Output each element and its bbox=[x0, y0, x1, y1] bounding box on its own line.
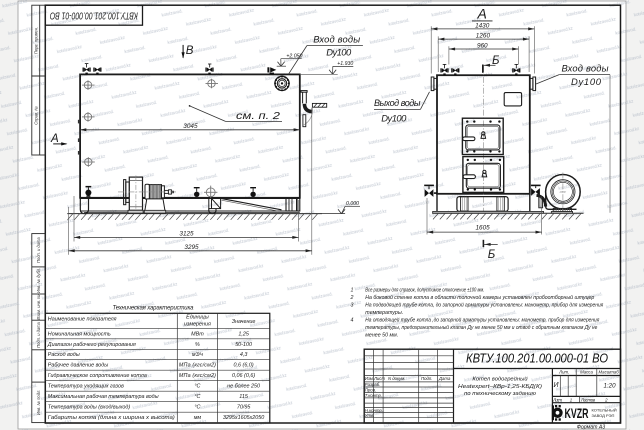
svg-text:МПа (кгс/см2): МПа (кгс/см2) bbox=[179, 363, 216, 369]
svg-text:ЗАВОД РЭП: ЗАВОД РЭП bbox=[592, 413, 615, 418]
svg-text:Котел водогрейный: Котел водогрейный bbox=[472, 376, 528, 383]
svg-text:70/95: 70/95 bbox=[237, 405, 251, 411]
svg-text:Вход воды: Вход воды bbox=[562, 62, 609, 73]
svg-text:Диапазон рабочего регулировани: Диапазон рабочего регулирования bbox=[47, 342, 136, 348]
svg-text:1,25: 1,25 bbox=[238, 331, 249, 337]
svg-text:°С: °С bbox=[194, 405, 200, 411]
svg-text:Взам. инв. №: Взам. инв. № bbox=[36, 294, 41, 320]
svg-text:Техническая характеристика: Техническая характеристика bbox=[113, 306, 195, 312]
svg-text:А: А bbox=[477, 6, 487, 22]
svg-text:КВТУ.100.201.00.000-01 ВО: КВТУ.100.201.00.000-01 ВО bbox=[466, 352, 608, 366]
svg-text:Справ. №: Справ. № bbox=[33, 106, 38, 125]
svg-text:3295: 3295 bbox=[184, 244, 199, 251]
svg-text:%: % bbox=[195, 342, 200, 348]
svg-text:Dy100: Dy100 bbox=[571, 76, 602, 87]
svg-text:Масса: Масса bbox=[580, 370, 593, 375]
svg-text:А: А bbox=[50, 133, 59, 145]
svg-text:Гидравлическое сопротивление к: Гидравлическое сопротивление котла bbox=[48, 373, 147, 379]
svg-text:Б: Б bbox=[492, 55, 500, 67]
svg-text:Листов: Листов bbox=[580, 398, 596, 403]
svg-text:1605: 1605 bbox=[475, 225, 490, 232]
svg-text:Номинальная мощность: Номинальная мощность bbox=[48, 331, 111, 337]
svg-text:0,6 (6,0): 0,6 (6,0) bbox=[234, 363, 254, 369]
svg-text:Пров.: Пров. bbox=[365, 388, 376, 393]
svg-text:+1.930: +1.930 bbox=[337, 61, 353, 67]
svg-text:КОТЕЛЬНЫЙ: КОТЕЛЬНЫЙ bbox=[592, 408, 617, 413]
svg-text:Лит.: Лит. bbox=[558, 370, 569, 375]
svg-text:Разраб.: Разраб. bbox=[365, 382, 381, 387]
svg-text:Габариты котла (длина х ширина: Габариты котла (длина х ширина х высота) bbox=[48, 415, 175, 421]
svg-text:0,06 (0,6): 0,06 (0,6) bbox=[232, 373, 255, 379]
svg-text:Значение: Значение bbox=[232, 319, 256, 325]
svg-text:по техническому заданию: по техническому заданию bbox=[464, 391, 536, 397]
svg-text:КВТУ.100.201.00.000-01 ВО: КВТУ.100.201.00.000-01 ВО bbox=[50, 10, 138, 22]
svg-text:температуры, предохранительный: температуры, предохранительный клапан Ду… bbox=[365, 324, 597, 331]
svg-text:Расход воды: Расход воды bbox=[48, 352, 80, 358]
svg-text:мм: мм bbox=[194, 415, 202, 421]
svg-text:Heatexpert–КВр-1,25-КБД(К): Heatexpert–КВр-1,25-КБД(К) bbox=[458, 384, 542, 390]
svg-text:50-100: 50-100 bbox=[235, 342, 252, 348]
svg-text:Температура воды (вход/выход): Температура воды (вход/выход) bbox=[48, 405, 131, 411]
svg-text:1: 1 bbox=[351, 288, 354, 294]
svg-text:115: 115 bbox=[239, 394, 249, 400]
svg-text:Инв. № дубл.: Инв. № дубл. bbox=[36, 268, 41, 293]
svg-text:Т.контр.: Т.контр. bbox=[365, 393, 382, 398]
svg-text:Dy100: Dy100 bbox=[381, 112, 407, 123]
svg-text:Dy100: Dy100 bbox=[326, 46, 352, 57]
svg-text:На подводящей трубе котла, до: На подводящей трубе котла, до запорной а… bbox=[365, 302, 603, 309]
svg-text:Дата: Дата bbox=[438, 376, 451, 381]
svg-text:N докум.: N докум. bbox=[388, 376, 405, 381]
svg-text:1260: 1260 bbox=[476, 33, 491, 40]
svg-text:3125: 3125 bbox=[179, 231, 194, 238]
svg-text:Изм.Лист: Изм.Лист bbox=[365, 376, 386, 381]
svg-text:4,3: 4,3 bbox=[240, 352, 248, 358]
svg-text:Инв. № подл.: Инв. № подл. bbox=[36, 390, 41, 415]
svg-text:Максимальная рабочая температу: Максимальная рабочая температура воды bbox=[48, 394, 159, 400]
svg-text:°С: °С bbox=[194, 394, 200, 400]
svg-text:Наименование показателя: Наименование показателя bbox=[48, 316, 117, 322]
svg-text:1:20: 1:20 bbox=[603, 383, 616, 390]
svg-text:Б: Б bbox=[488, 249, 496, 261]
svg-text:менее 50 мм.: менее 50 мм. bbox=[365, 332, 398, 338]
svg-text:960: 960 bbox=[477, 42, 488, 49]
svg-text:не более 250: не более 250 bbox=[227, 384, 260, 390]
svg-text:1430: 1430 bbox=[475, 22, 490, 29]
svg-text:Формат А3: Формат А3 bbox=[577, 425, 605, 430]
svg-text:°С: °С bbox=[194, 384, 200, 390]
svg-text:измерения: измерения bbox=[184, 321, 211, 327]
svg-text:МПа (кгс/см2): МПа (кгс/см2) bbox=[179, 373, 216, 379]
svg-text:Температура уходящих газов: Температура уходящих газов bbox=[48, 384, 124, 390]
svg-text:В: В bbox=[186, 45, 194, 57]
svg-text:Рабочее давление воды: Рабочее давление воды bbox=[48, 363, 108, 369]
svg-text:Утв.: Утв. bbox=[365, 413, 375, 418]
svg-text:3045: 3045 bbox=[183, 123, 198, 130]
svg-text:3: 3 bbox=[351, 303, 354, 309]
svg-text:На боковой стенке котла в обла: На боковой стенке котла в области топочн… bbox=[365, 294, 594, 301]
svg-text:4: 4 bbox=[351, 318, 354, 324]
svg-text:Лист: Лист bbox=[552, 398, 562, 403]
svg-text:2: 2 bbox=[350, 295, 354, 301]
svg-text:Вход воды: Вход воды bbox=[313, 33, 360, 44]
svg-text:3295х1605х2050: 3295х1605х2050 bbox=[223, 415, 264, 421]
svg-text:Подп. и дата: Подп. и дата bbox=[36, 237, 41, 263]
svg-text:м3/ч: м3/ч bbox=[192, 352, 203, 358]
svg-text:Подп. и дата: Подп. и дата bbox=[36, 321, 41, 347]
svg-text:Единицы: Единицы bbox=[186, 315, 209, 321]
svg-text:Подп.: Подп. bbox=[421, 376, 432, 381]
svg-text:МВт: МВт bbox=[191, 331, 204, 337]
svg-text:Перв. примен.: Перв. примен. bbox=[33, 27, 38, 54]
svg-text:KVZR: KVZR bbox=[565, 405, 589, 421]
svg-text:Масштаб: Масштаб bbox=[599, 370, 620, 375]
svg-text:см. п. 2: см. п. 2 bbox=[236, 111, 281, 122]
svg-text:температуры.: температуры. bbox=[365, 310, 403, 316]
svg-text:На отводящей трубе котла ,до з: На отводящей трубе котла ,до запорной ар… bbox=[365, 317, 599, 324]
svg-text:Выход воды: Выход воды bbox=[374, 98, 421, 108]
svg-text:Все размеры для справок, допус: Все размеры для справок, допустимое откл… bbox=[365, 288, 484, 294]
